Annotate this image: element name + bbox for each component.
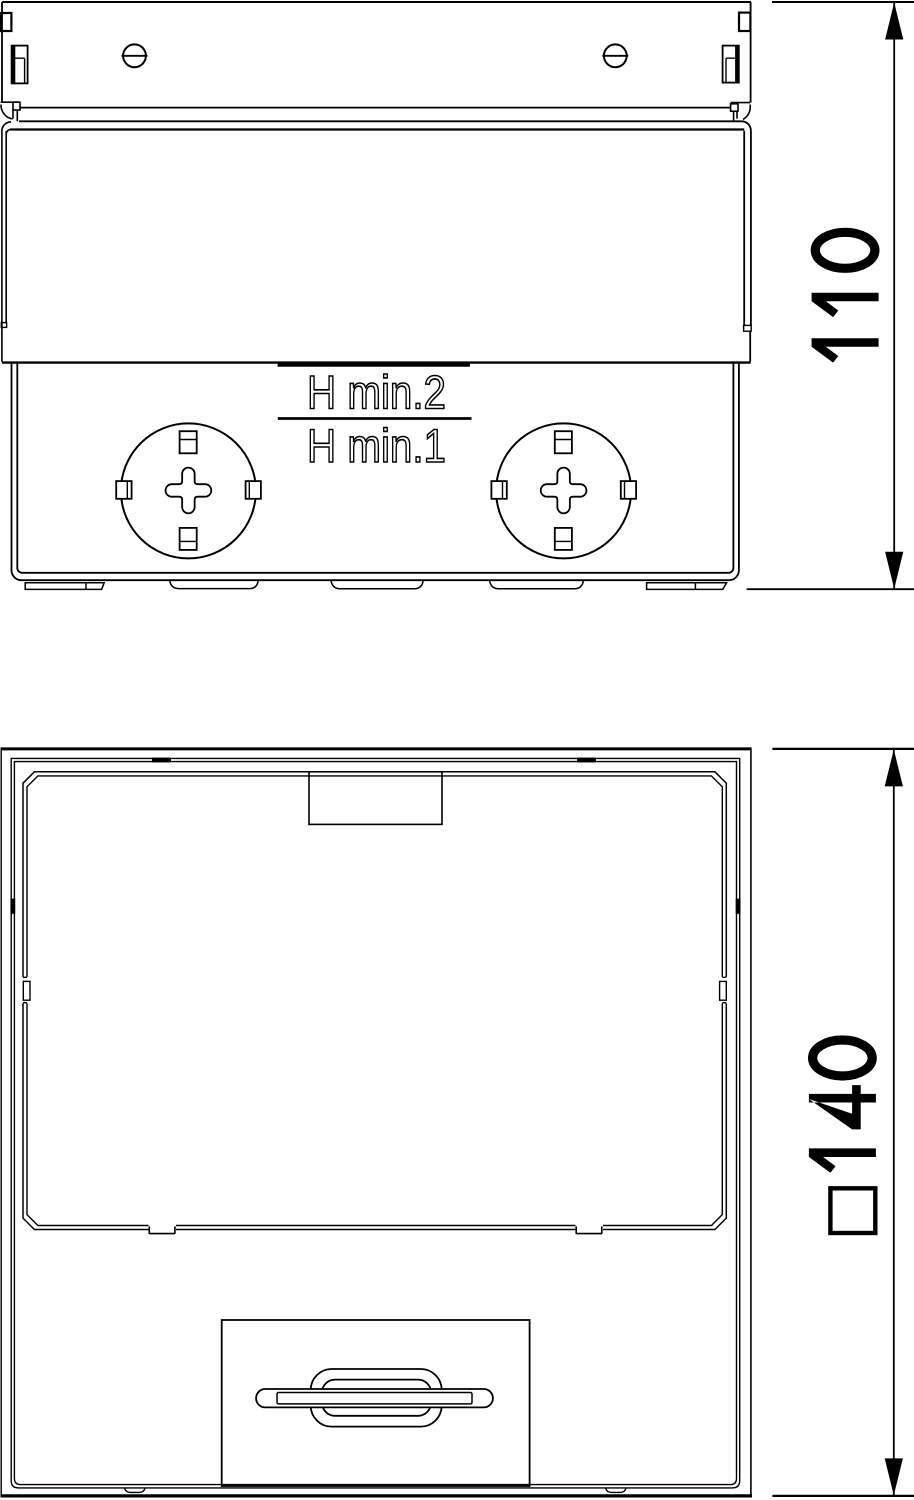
svg-text:H min.1: H min.1 xyxy=(307,419,446,472)
svg-text:H min.2: H min.2 xyxy=(307,366,446,419)
